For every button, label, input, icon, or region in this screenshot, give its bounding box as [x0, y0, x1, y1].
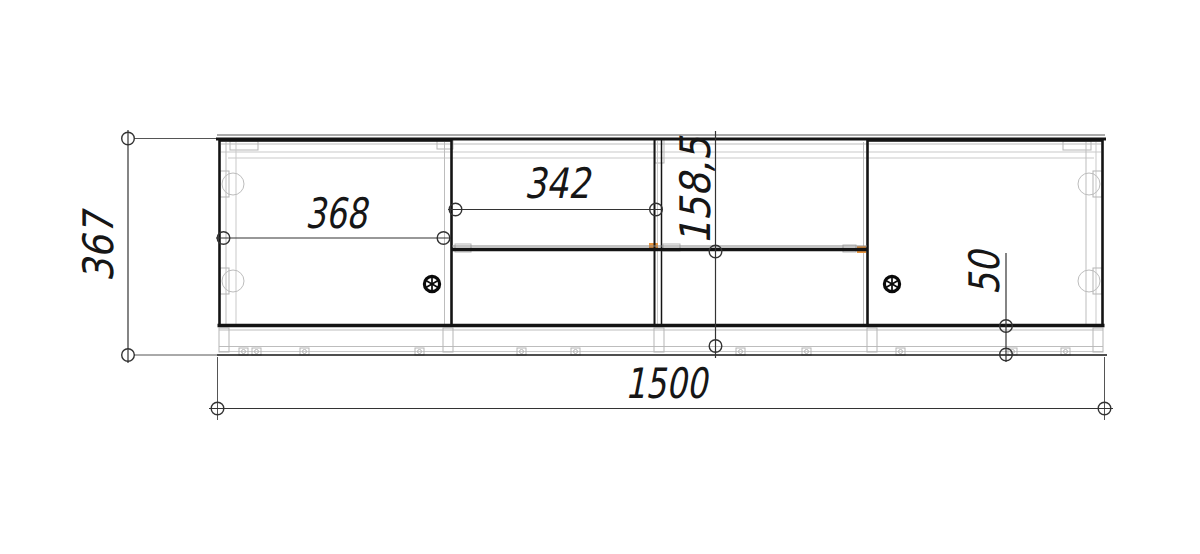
dimension-middle-niche-width: 342	[448, 159, 663, 216]
middle-shelf	[452, 246, 867, 250]
right-door-hinge-bottom-icon	[1078, 268, 1102, 294]
dimension-overall-height: 367	[74, 130, 218, 363]
left-door-hinge-top-icon	[220, 171, 244, 197]
dim-label-middle-niche-width: 342	[524, 159, 592, 208]
right-door-hinge-top-icon	[1078, 171, 1102, 197]
left-door-hinge-bottom-icon	[220, 268, 244, 294]
cabinet-outline	[216, 135, 1107, 355]
dimension-overall-width: 1500	[209, 357, 1113, 420]
dim-label-overall-width: 1500	[625, 359, 710, 408]
left-door-knob-icon	[424, 276, 439, 291]
dimension-left-door-width: 368	[216, 189, 451, 244]
dimension-plinth-height: 50	[960, 248, 1012, 362]
right-door-knob-icon	[884, 276, 899, 291]
dim-label-left-door-width: 368	[305, 189, 370, 238]
right-door	[868, 141, 1103, 326]
cabinet-elevation-drawing: 367 368 342 158,5 50 1500	[0, 0, 1200, 554]
dim-label-overall-height: 367	[74, 208, 123, 282]
dim-label-plinth-height: 50	[960, 248, 1009, 295]
drawing-canvas: 367 368 342 158,5 50 1500	[0, 0, 1200, 554]
dim-label-niche-height: 158,5	[671, 135, 720, 245]
